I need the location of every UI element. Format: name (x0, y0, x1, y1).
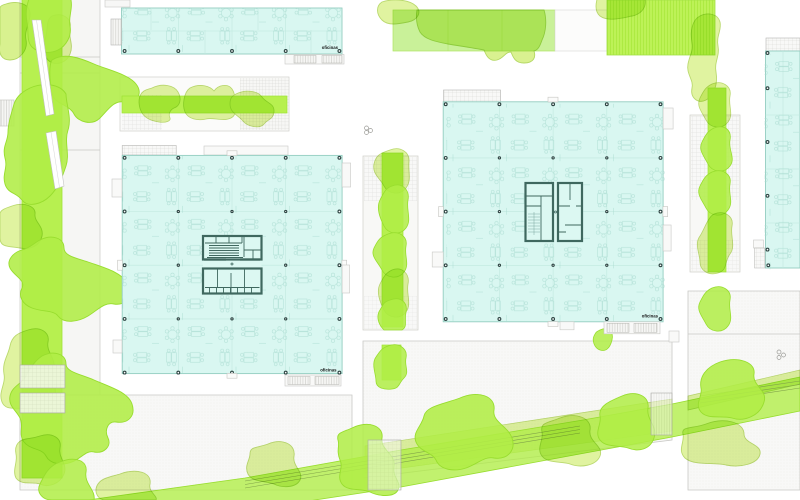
svg-text:oficinas: oficinas (322, 45, 339, 50)
svg-text:oficinas: oficinas (320, 368, 337, 373)
svg-text:oficinas: oficinas (642, 313, 659, 318)
